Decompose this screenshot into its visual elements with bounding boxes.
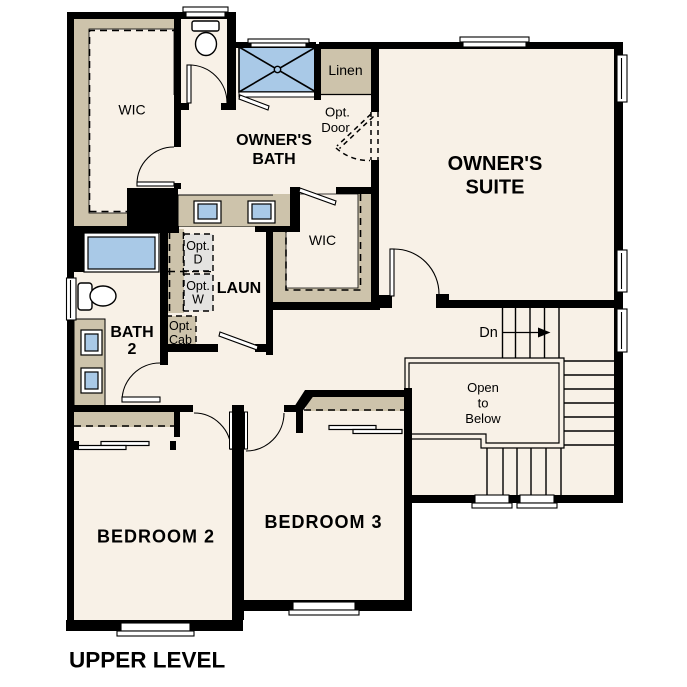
svg-text:BEDROOM 3: BEDROOM 3: [264, 512, 382, 532]
svg-text:W: W: [192, 293, 204, 307]
svg-text:Dn: Dn: [479, 325, 498, 341]
svg-text:Linen: Linen: [328, 62, 362, 78]
svg-text:D: D: [193, 253, 202, 267]
svg-text:WIC: WIC: [309, 232, 336, 248]
svg-text:Opt.: Opt.: [169, 319, 193, 333]
svg-text:SUITE: SUITE: [466, 177, 525, 199]
svg-text:BEDROOM 2: BEDROOM 2: [97, 527, 215, 547]
svg-text:LAUN: LAUN: [217, 280, 261, 297]
svg-text:OWNER'S: OWNER'S: [236, 132, 312, 149]
svg-text:BATH: BATH: [110, 324, 153, 341]
svg-text:2: 2: [128, 341, 137, 358]
svg-text:Opt.: Opt.: [325, 105, 350, 120]
svg-text:Open: Open: [467, 380, 499, 395]
svg-text:OWNER'S: OWNER'S: [448, 153, 543, 175]
svg-text:Opt.: Opt.: [186, 279, 210, 293]
svg-text:BATH: BATH: [252, 151, 295, 168]
svg-text:WIC: WIC: [118, 102, 145, 118]
svg-text:Below: Below: [465, 411, 501, 426]
svg-text:Door: Door: [321, 120, 350, 135]
svg-text:Opt.: Opt.: [186, 239, 210, 253]
svg-text:to: to: [478, 396, 489, 411]
svg-text:UPPER LEVEL: UPPER LEVEL: [69, 648, 226, 673]
